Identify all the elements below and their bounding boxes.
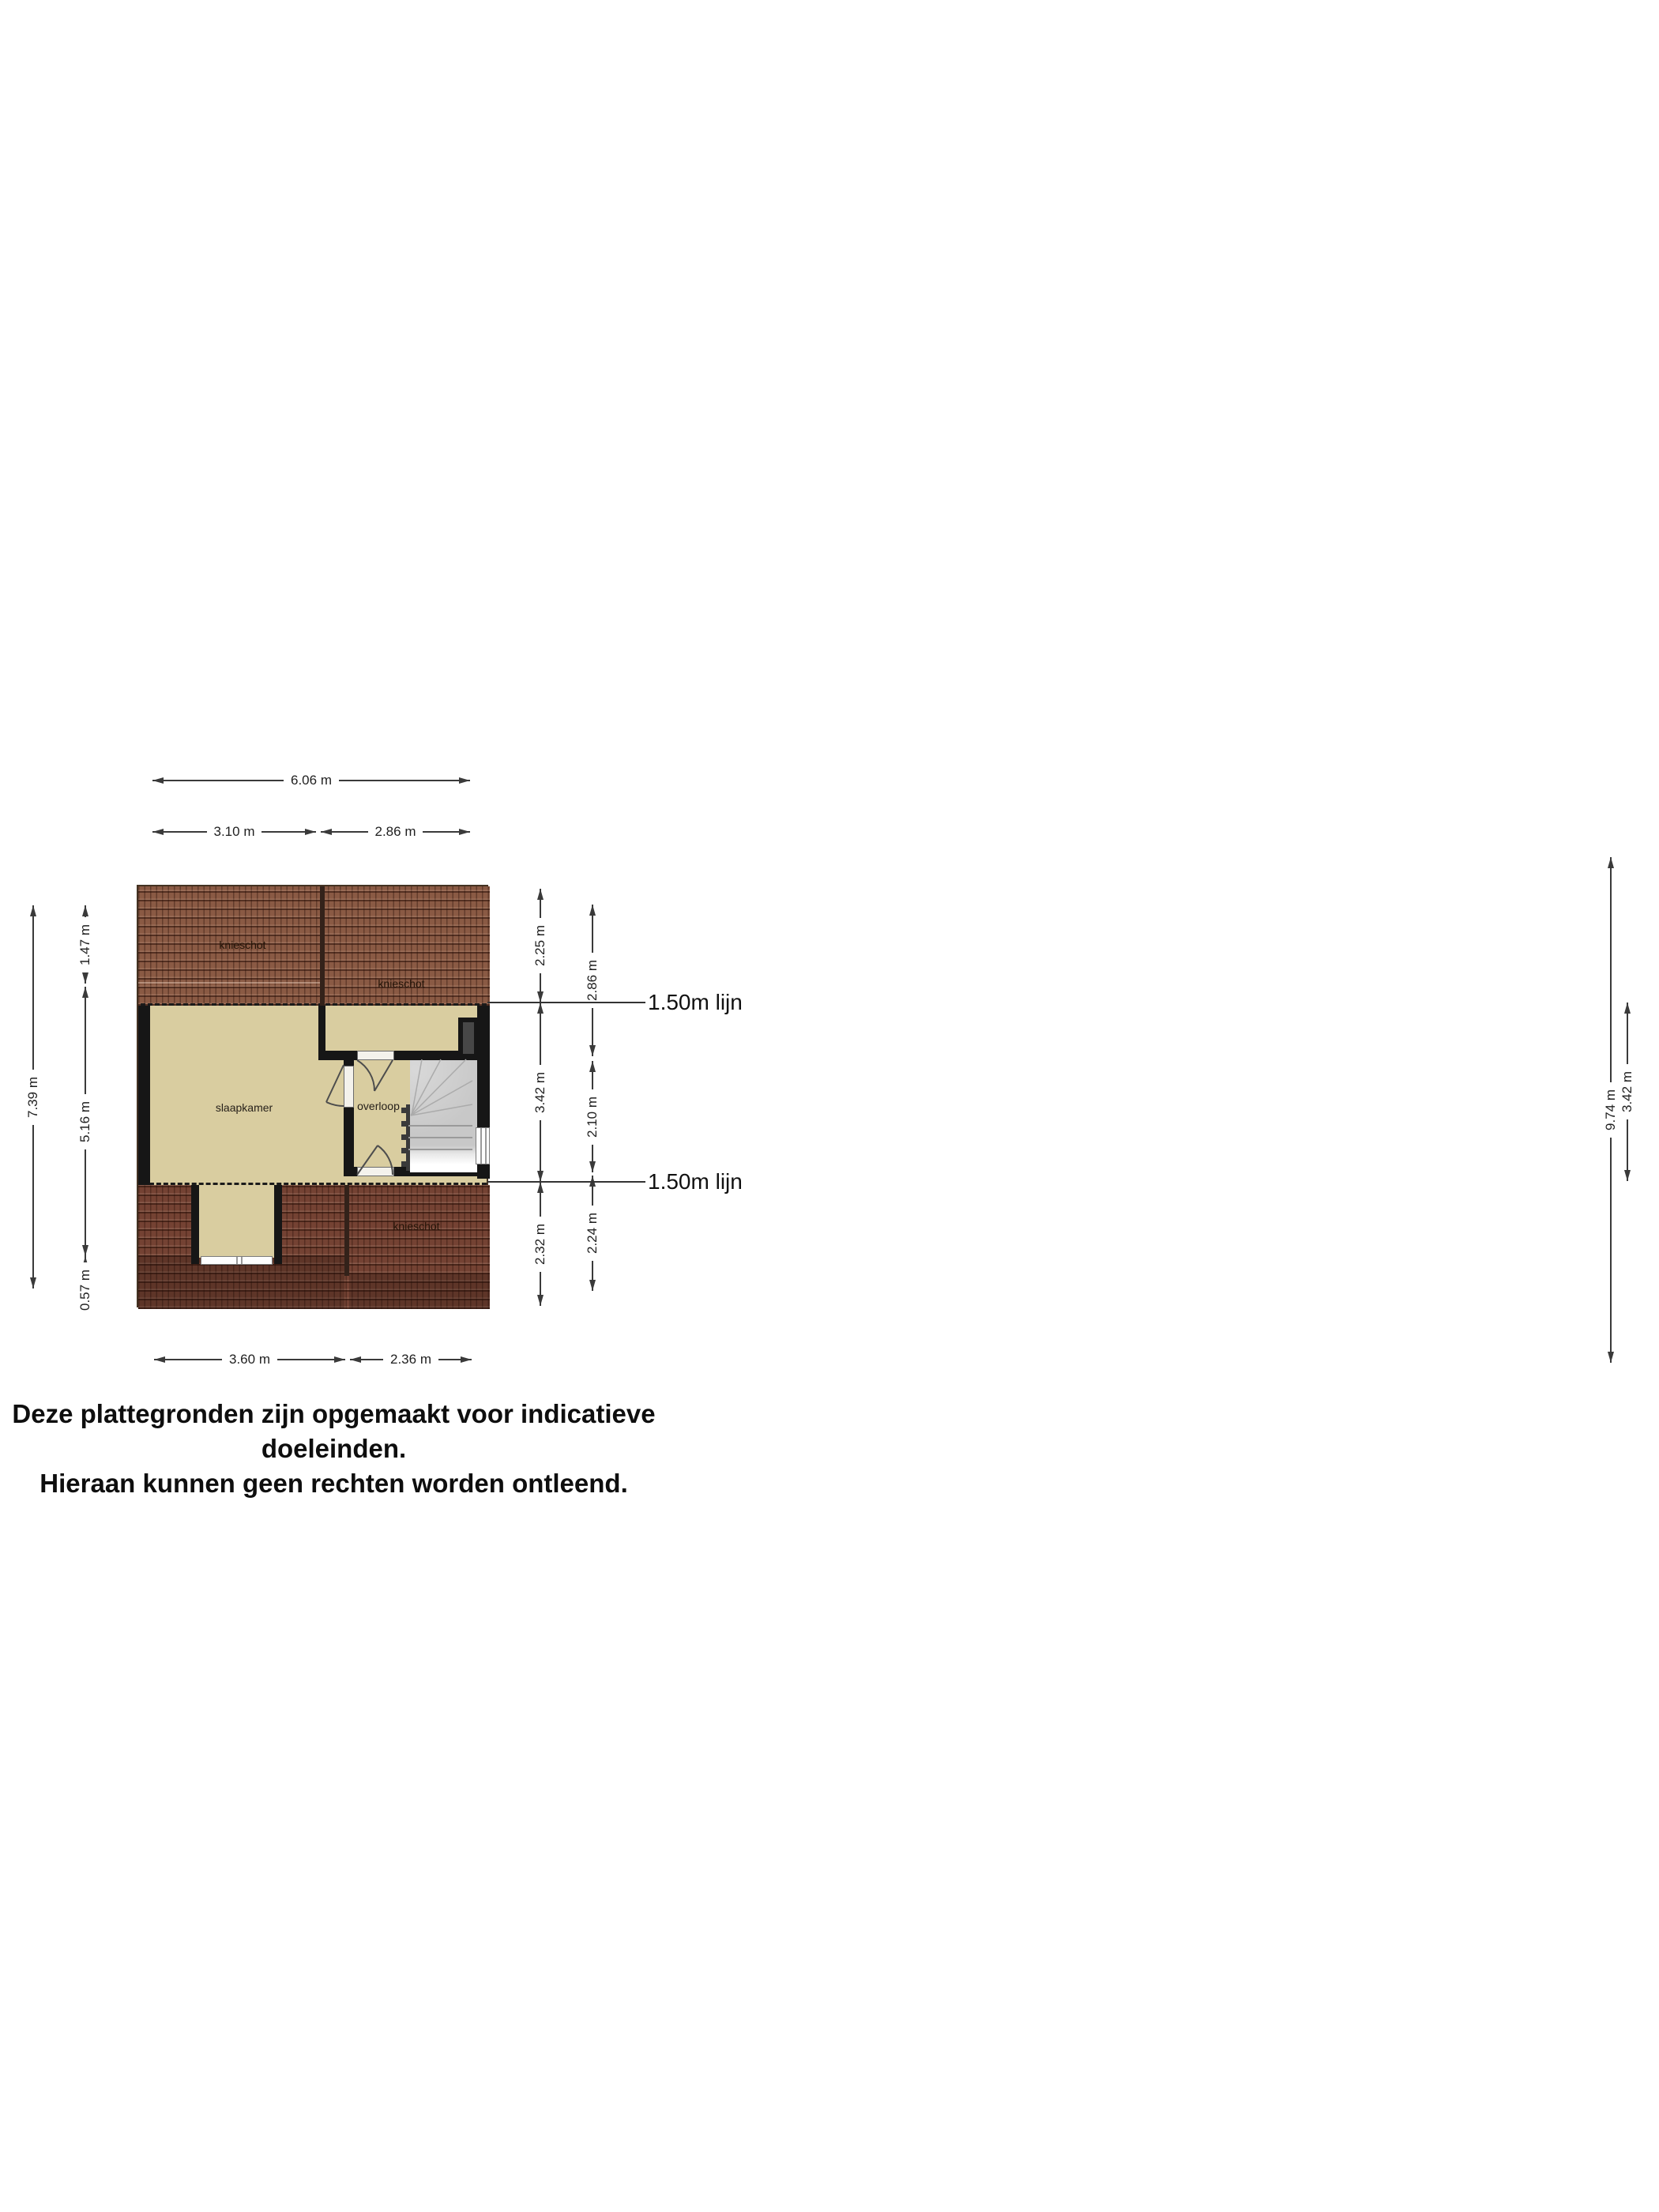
arrow-down-icon (589, 1280, 596, 1291)
leader-line-lower (487, 1181, 645, 1183)
arrow-up-icon (1624, 1003, 1631, 1014)
knee-wall-top-left-label: knieschot (219, 939, 265, 951)
dimension-label: 2.86 m (368, 823, 423, 841)
arrow-down-icon (589, 1161, 596, 1172)
wall-right-exterior-upper (477, 1006, 490, 1127)
door-landing-bottom (357, 1167, 394, 1176)
stairwell-window (476, 1127, 490, 1164)
dimension-label: 5.16 m (77, 1094, 94, 1149)
arrow-down-icon (537, 1295, 544, 1306)
baluster-tick (401, 1108, 406, 1113)
dimension-label: 2.86 m (584, 953, 601, 1008)
dormer-floor (199, 1185, 274, 1258)
arrow-left-icon (152, 777, 164, 784)
dimension-label: 3.42 m (532, 1065, 549, 1120)
roof-shade-right (349, 1273, 490, 1309)
wall-landing-top (320, 1051, 477, 1060)
dimension-label: 3.42 m (1619, 1064, 1636, 1119)
arrow-left-icon (350, 1356, 361, 1363)
arrow-up-icon (537, 1003, 544, 1014)
dimension-label: 2.36 m (383, 1351, 438, 1368)
knee-wall-top-right-label: knieschot (378, 977, 424, 990)
disclaimer-line-1: Deze plattegronden zijn opgemaakt voor i… (0, 1397, 668, 1466)
chimney-flue (463, 1022, 474, 1054)
dimension-label: 0.57 m (77, 1262, 94, 1318)
arrow-up-icon (537, 1182, 544, 1193)
arrow-down-icon (537, 1171, 544, 1182)
dormer-window (201, 1256, 273, 1265)
dimension-label: 7.39 m (24, 1070, 42, 1125)
disclaimer: Deze plattegronden zijn opgemaakt voor i… (0, 1397, 668, 1501)
arrow-right-icon (305, 829, 316, 835)
arrow-up-icon (82, 987, 88, 998)
baluster-tick (401, 1148, 406, 1153)
arrow-down-icon (589, 1045, 596, 1056)
dimension-label: 3.10 m (207, 823, 262, 841)
arrow-down-icon (1608, 1352, 1614, 1363)
baluster-tick (401, 1121, 406, 1127)
wall-left-exterior (138, 1006, 150, 1185)
arrow-left-icon (152, 829, 164, 835)
arrow-left-icon (321, 829, 332, 835)
arrow-right-icon (461, 1356, 472, 1363)
roof-eave-line (138, 982, 320, 984)
bedroom-label: slaapkamer (216, 1101, 273, 1114)
dimension-label: 2.10 m (584, 1089, 601, 1145)
dimension-label: 1.47 m (77, 917, 94, 972)
landing-label: overloop (357, 1100, 400, 1112)
arrow-up-icon (589, 1061, 596, 1072)
window-mullion (480, 1128, 482, 1164)
wall-dormer-left (191, 1185, 199, 1264)
knee-wall-dashed-line-upper (141, 1003, 487, 1006)
stair-balustrade (406, 1104, 410, 1171)
arrow-down-icon (1624, 1170, 1631, 1181)
knee-wall-bottom-label: knieschot (393, 1220, 439, 1232)
arrow-down-icon (82, 972, 88, 984)
wall-roof-divider-top (320, 886, 325, 1006)
leader-line-upper (487, 1002, 645, 1003)
arrow-up-icon (537, 889, 544, 900)
arrow-right-icon (459, 777, 470, 784)
roof-top-band (138, 886, 490, 1006)
dimension-label: 2.24 m (584, 1206, 601, 1261)
arrow-left-icon (154, 1356, 165, 1363)
page: { "disclaimer": { "line1": "Deze platteg… (0, 0, 1659, 2212)
dimension-label: 6.06 m (284, 772, 339, 789)
arrow-up-icon (589, 905, 596, 916)
dimension-label: 9.74 m (1602, 1082, 1619, 1138)
dimension-label: 2.32 m (532, 1217, 549, 1272)
door-landing-top (357, 1051, 394, 1060)
wall-roof-divider-bottom (344, 1185, 349, 1276)
window-mullion (236, 1257, 238, 1264)
dimension-label: 2.25 m (532, 918, 549, 973)
arrow-down-icon (30, 1277, 36, 1288)
arrow-up-icon (1608, 857, 1614, 868)
door-bedroom (344, 1066, 354, 1108)
window-mullion (485, 1128, 487, 1164)
height-line-label-upper: 1.50m lijn (648, 990, 743, 1015)
disclaimer-line-2: Hieraan kunnen geen rechten worden ontle… (0, 1466, 668, 1501)
baluster-tick (401, 1134, 406, 1140)
dimension-label: 3.60 m (222, 1351, 277, 1368)
window-mullion (241, 1257, 243, 1264)
arrow-right-icon (334, 1356, 345, 1363)
staircase (410, 1060, 477, 1172)
arrow-up-icon (30, 905, 36, 916)
arrow-right-icon (459, 829, 470, 835)
floorplan: knieschot knieschot knieschot slaapkamer… (137, 885, 488, 1307)
arrow-down-icon (537, 991, 544, 1003)
baluster-tick (401, 1161, 406, 1167)
height-line-label-lower: 1.50m lijn (648, 1169, 743, 1194)
arrow-up-icon (82, 905, 88, 916)
wall-dormer-right (274, 1185, 282, 1264)
arrow-down-icon (82, 1245, 88, 1256)
